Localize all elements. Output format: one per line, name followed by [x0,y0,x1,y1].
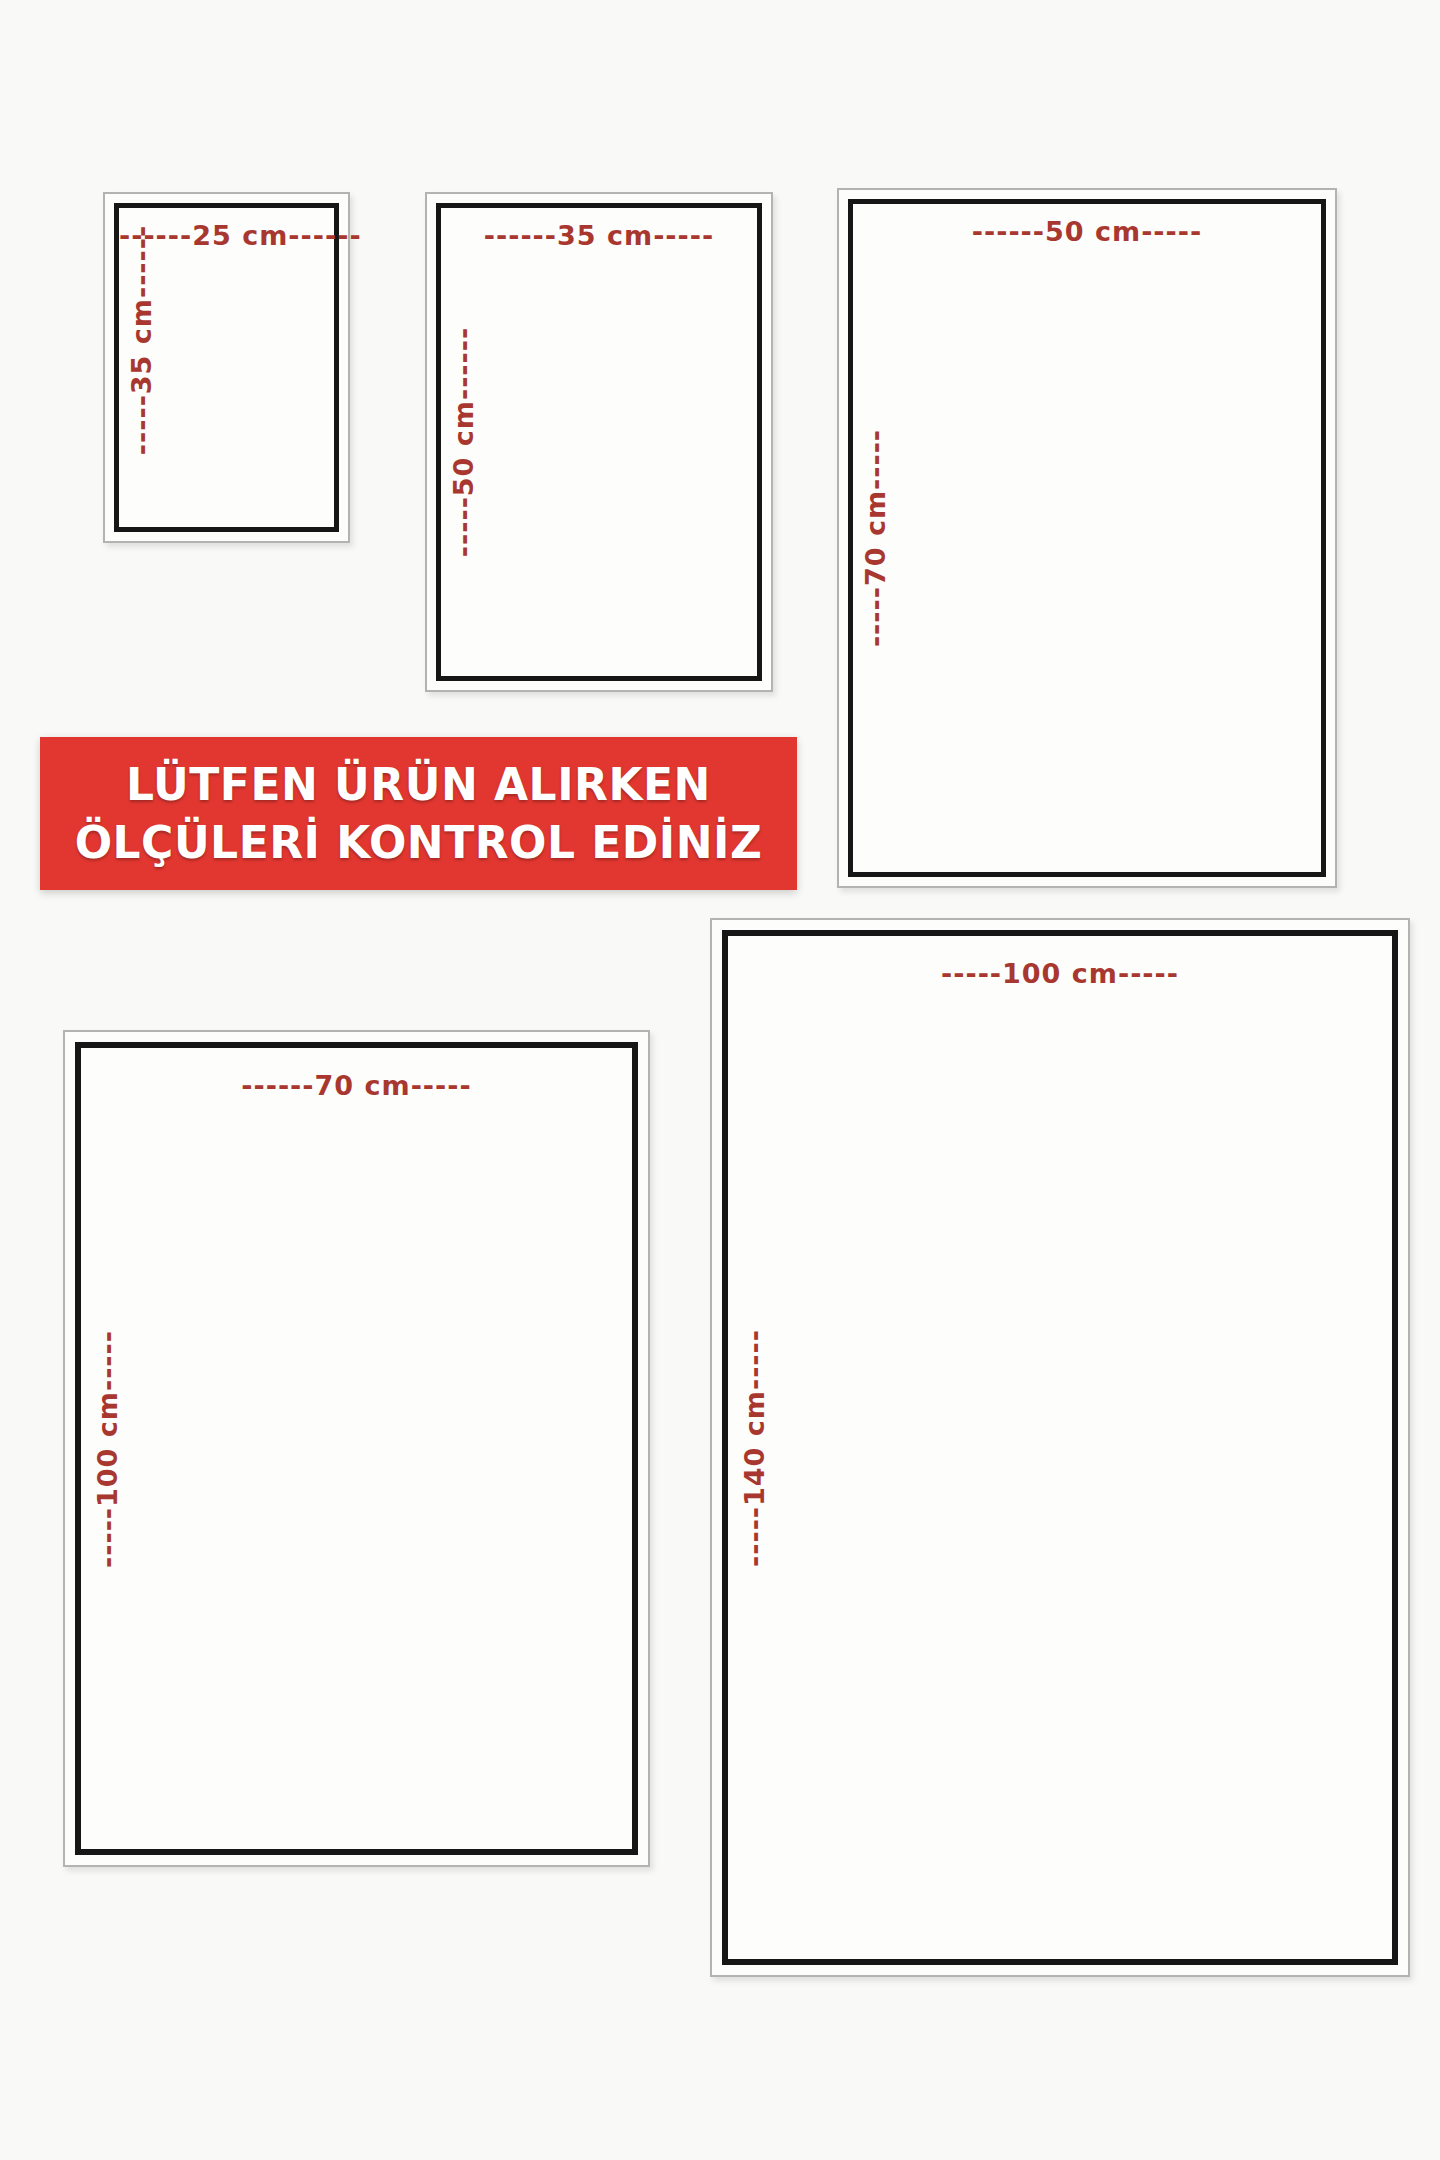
height-label-35cm: -----35 cm------ [126,224,157,454]
size-box-100x140-frame: -----100 cm----- -----140 cm----- [722,930,1398,1965]
width-label-100cm: -----100 cm----- [728,958,1392,989]
size-box-70x100: ------70 cm----- -----100 cm----- [63,1030,650,1867]
size-box-25x35-frame: ------25 cm------ -----35 cm------ [114,203,339,532]
height-label-50cm: -----50 cm------ [448,327,479,557]
width-label-50cm: ------50 cm----- [853,216,1321,247]
size-box-70x100-frame: ------70 cm----- -----100 cm----- [75,1042,638,1855]
width-label-35cm: ------35 cm----- [441,220,757,251]
notice-banner-line-1: LÜTFEN ÜRÜN ALIRKEN [40,756,797,813]
size-box-35x50-frame: ------35 cm----- -----50 cm------ [436,203,762,681]
size-box-100x140: -----100 cm----- -----140 cm----- [710,918,1410,1977]
size-box-50x70-frame: ------50 cm----- -----70 cm----- [848,199,1326,877]
width-label-70cm: ------70 cm----- [81,1070,632,1101]
notice-banner: LÜTFEN ÜRÜN ALIRKEN ÖLÇÜLERİ KONTROL EDİ… [40,737,797,890]
size-box-25x35: ------25 cm------ -----35 cm------ [103,192,350,543]
size-box-35x50: ------35 cm----- -----50 cm------ [425,192,773,692]
height-label-140cm: -----140 cm----- [739,1329,770,1567]
notice-banner-line-2: ÖLÇÜLERİ KONTROL EDİNİZ [40,814,797,871]
height-label-100cm: -----100 cm----- [92,1330,123,1568]
size-box-50x70: ------50 cm----- -----70 cm----- [837,188,1337,888]
height-label-70cm: -----70 cm----- [860,429,891,647]
size-chart-page: ------25 cm------ -----35 cm------ -----… [0,0,1440,2160]
